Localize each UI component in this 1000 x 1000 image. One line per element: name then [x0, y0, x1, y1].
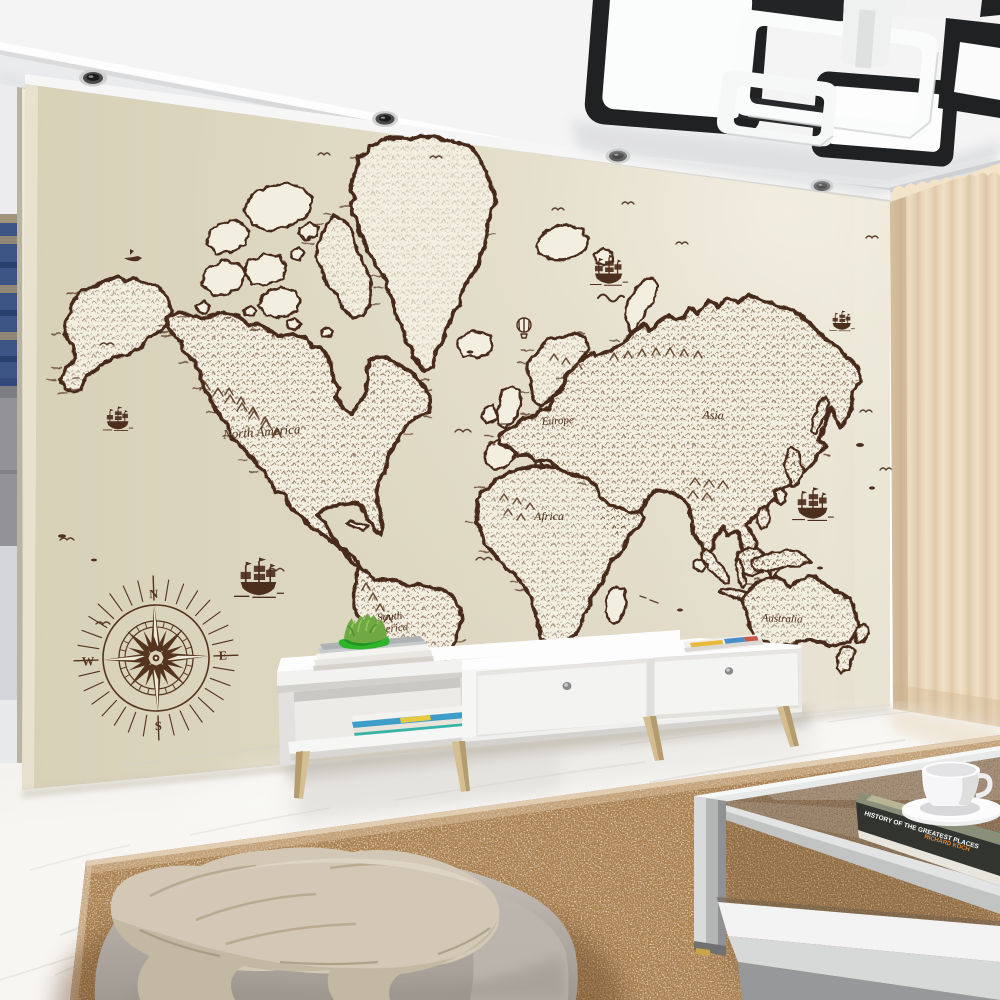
- svg-text:Asia: Asia: [701, 408, 724, 423]
- svg-text:Europe: Europe: [541, 414, 575, 428]
- svg-text:W: W: [82, 654, 95, 668]
- svg-text:Africa: Africa: [533, 509, 564, 523]
- svg-text:Australia: Australia: [760, 612, 803, 625]
- svg-text:E: E: [219, 649, 228, 663]
- svg-text:N: N: [149, 587, 159, 601]
- svg-text:S: S: [155, 719, 162, 733]
